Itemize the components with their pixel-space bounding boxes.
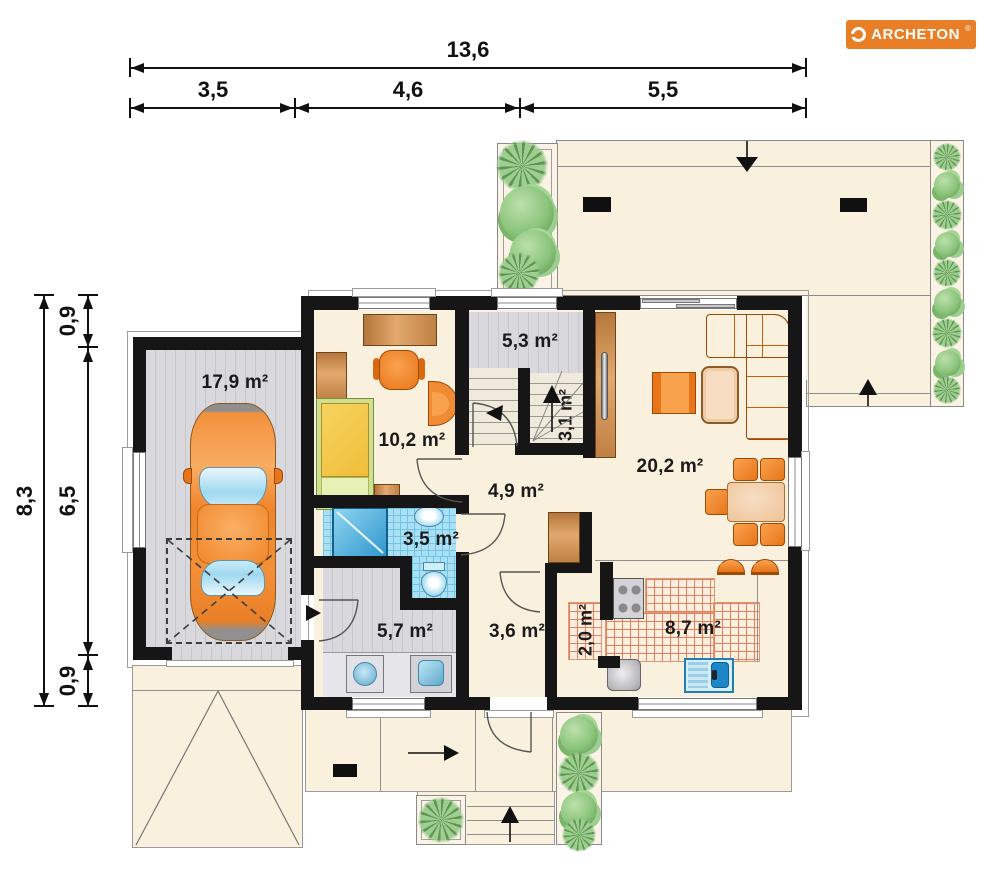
utility-window: [352, 698, 425, 710]
washer-drum: [353, 662, 377, 686]
dim-label-garage-depth: 6,5: [55, 486, 81, 517]
dim-label-living-width: 5,5: [648, 77, 679, 103]
wall: [547, 697, 638, 710]
desk: [363, 314, 437, 346]
wall: [430, 296, 497, 310]
fern-plant: [558, 752, 600, 794]
terrace: [556, 140, 936, 296]
dim-arrow: [131, 103, 144, 113]
dim-label-total-depth: 8,3: [12, 486, 38, 517]
dim-label-garage-width: 3,5: [198, 77, 229, 103]
utility-sink-basin: [418, 660, 444, 686]
driveway-line: [132, 690, 303, 691]
dim-line: [130, 107, 806, 109]
dim-arrow: [39, 296, 49, 309]
dim-line: [43, 295, 45, 707]
wall: [133, 337, 146, 452]
archeton-logo: ARCHETON ®: [846, 20, 976, 49]
wall: [314, 495, 469, 508]
wall: [598, 656, 620, 668]
room-label-kitchen: 8,7 m²: [665, 618, 721, 640]
fern-plant: [418, 797, 464, 843]
driveway: [132, 665, 303, 848]
dim-arrow: [792, 103, 805, 113]
dim-arrow: [296, 103, 309, 113]
toilet-tank: [423, 562, 445, 571]
terrace-edge-line: [557, 166, 935, 167]
fern-plant: [933, 143, 961, 171]
fern-plant: [932, 318, 962, 348]
room-label-bedroom: 10,2 m²: [379, 430, 446, 452]
wall: [557, 296, 640, 310]
office-chair: [379, 350, 419, 390]
dining-table: [727, 482, 785, 522]
wall: [757, 697, 802, 710]
dim-arrow: [39, 693, 49, 706]
wall: [788, 296, 802, 457]
window-sill: [801, 451, 810, 551]
wall: [314, 697, 352, 710]
bathroom-sink: [414, 506, 444, 527]
bed-mattress: [321, 403, 369, 477]
sink-drainboard: [688, 662, 708, 688]
step-line: [467, 820, 555, 821]
hall-window: [497, 297, 557, 309]
living-doorway-threshold: [548, 512, 580, 563]
step-line: [467, 834, 555, 835]
entrance-porch: [305, 710, 792, 792]
dim-tick: [805, 98, 807, 118]
wall: [583, 310, 595, 458]
fern-plant: [933, 259, 961, 287]
room-label-upper-hall: 5,3 m²: [502, 331, 558, 353]
dining-chair: [733, 523, 758, 546]
wall: [314, 296, 358, 310]
garage-door-sill: [166, 660, 294, 667]
wardrobe: [316, 352, 347, 400]
entry-threshold: [484, 710, 554, 718]
window-sill: [352, 288, 436, 297]
dim-arrow: [83, 693, 93, 706]
room-label-hall: 4,9 m²: [488, 481, 544, 503]
wall: [515, 443, 583, 455]
porch-post: [333, 764, 357, 777]
car-mirror: [183, 468, 192, 484]
dim-label-total-width: 13,6: [447, 37, 490, 63]
bush-plant: [934, 289, 961, 316]
garage-door-opening: [172, 647, 288, 660]
wall: [314, 556, 412, 568]
step-line: [467, 806, 555, 807]
wall: [301, 296, 314, 595]
dim-arrow: [83, 642, 93, 655]
dim-arrow: [83, 296, 93, 309]
fern-plant: [562, 818, 596, 852]
dim-label-middle-width: 4,6: [393, 77, 424, 103]
counter-edge-line: [757, 575, 758, 662]
car-mirror: [274, 468, 283, 484]
dim-arrow: [131, 63, 144, 73]
porch-step-line: [380, 710, 381, 792]
wall: [456, 508, 469, 514]
dim-arrow: [83, 334, 93, 347]
corner-sofa-side: [746, 314, 790, 440]
room-label-stairs: 3,1 m²: [556, 389, 577, 441]
brand-name: ARCHETON: [871, 26, 960, 43]
terrace-side: [806, 296, 936, 380]
bush-plant: [935, 350, 961, 376]
wall: [301, 640, 314, 710]
dim-arrow: [792, 63, 805, 73]
registered-mark: ®: [965, 24, 971, 33]
terrace-post: [583, 197, 611, 212]
wall: [455, 310, 469, 455]
window-sill: [122, 447, 133, 553]
dim-label-bottom-offset: 0,9: [55, 666, 81, 697]
garage-window: [133, 452, 146, 548]
fern-plant: [933, 376, 961, 404]
wall: [400, 598, 457, 610]
stairs-left-flight: [469, 368, 518, 445]
window-sill: [632, 710, 763, 718]
window-sill: [491, 288, 563, 297]
terrace-post: [840, 198, 867, 212]
floor-plan-page: ARCHETON ® 13,6 3,5 4,6 5,5 8,3: [0, 0, 995, 896]
bush-plant: [934, 172, 960, 198]
dim-arrow: [83, 657, 93, 670]
dim-label-top-offset: 0,9: [55, 306, 81, 337]
bedroom-window: [358, 297, 430, 309]
terrace-step-line: [806, 393, 936, 394]
dim-tick: [805, 58, 807, 77]
room-label-utility: 5,7 m²: [377, 621, 433, 643]
fern-plant: [496, 140, 548, 192]
sliding-door-panel: [676, 304, 735, 308]
bush-plant: [935, 232, 960, 257]
dining-chair: [760, 458, 785, 481]
window-sill: [346, 710, 431, 718]
dim-line: [130, 67, 806, 69]
wall: [456, 552, 469, 697]
wall: [580, 512, 592, 570]
office-chair-arm: [418, 358, 425, 380]
bush-plant: [560, 716, 598, 754]
coffee-table: [701, 366, 739, 424]
cabinet-handle: [601, 352, 608, 420]
wall: [518, 368, 530, 445]
room-label-bathroom: 3,5 m²: [403, 529, 459, 551]
wall: [133, 337, 314, 350]
room-label-entry-hall: 3,6 m²: [489, 621, 545, 643]
kitchen-window: [638, 698, 757, 710]
dim-arrow: [83, 349, 93, 362]
wall: [425, 697, 490, 710]
porch-step-line: [552, 710, 553, 792]
wall: [133, 647, 172, 660]
sliding-door-panel: [642, 299, 700, 303]
porch-step-line: [475, 710, 476, 792]
wall: [545, 563, 557, 697]
archeton-logo-icon: [851, 27, 866, 42]
wall: [788, 547, 802, 710]
room-label-living-room: 20,2 m²: [637, 456, 704, 478]
dining-chair: [733, 458, 758, 481]
living-room-window: [788, 457, 802, 547]
car-windshield: [199, 467, 267, 509]
dim-arrow: [505, 103, 518, 113]
room-label-garage: 17,9 m²: [202, 372, 269, 394]
armchair: [652, 372, 696, 414]
room-label-pantry: 2,0 m²: [576, 604, 597, 656]
fern-plant: [932, 200, 962, 230]
wall: [133, 548, 146, 660]
dining-chair: [760, 523, 785, 546]
dining-chair: [705, 489, 729, 515]
wall: [600, 562, 613, 620]
stove: [613, 578, 644, 619]
shower: [332, 507, 388, 559]
garage-door-swing-area: [166, 538, 292, 644]
dim-arrow: [280, 103, 293, 113]
sink-faucet: [712, 670, 717, 680]
dim-arrow: [521, 103, 534, 113]
wall: [545, 563, 592, 573]
